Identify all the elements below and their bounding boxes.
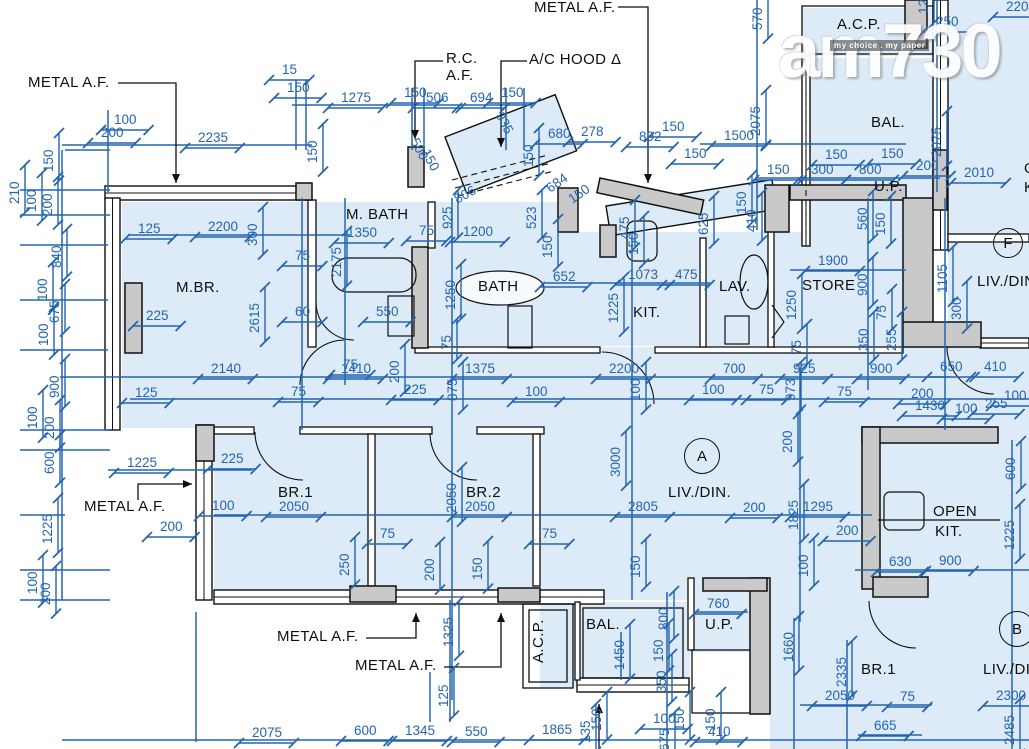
leader-arrowhead (183, 480, 192, 488)
structural-wall (408, 147, 424, 187)
am730-tagline: my choice . my paper (830, 40, 929, 51)
plan-drawing (0, 0, 1029, 749)
room-fill (770, 592, 1029, 749)
partition-wall (533, 434, 540, 586)
leader-line (118, 83, 176, 183)
partition-wall (308, 200, 316, 347)
leader-arrowhead (497, 613, 505, 622)
partition-wall (214, 427, 254, 434)
structural-wall (600, 225, 616, 257)
partition-wall (692, 650, 752, 713)
leader-arrowhead (644, 174, 652, 183)
structural-wall (350, 586, 396, 602)
leader-arrowhead (172, 174, 180, 183)
am730-logo: am730 (778, 14, 1000, 90)
fixture (456, 271, 544, 305)
structural-wall (765, 185, 789, 232)
floor-plan-page: 1515012751505066941501002002235150150570… (0, 0, 1029, 749)
structural-wall (703, 578, 767, 591)
structural-wall (862, 427, 998, 443)
partition-wall (768, 230, 774, 347)
structural-wall (903, 198, 933, 326)
leader-line (618, 7, 648, 183)
am730-watermark: am730 my choice . my paper (778, 14, 1000, 90)
structural-wall (862, 427, 880, 589)
structural-wall (125, 283, 142, 353)
structural-wall (296, 183, 312, 200)
partition-wall (948, 234, 1029, 242)
leader-line (366, 613, 416, 638)
partition-wall (368, 434, 375, 586)
partition-wall (655, 347, 903, 353)
room-fill (312, 202, 428, 348)
leader-line (415, 61, 443, 139)
structural-wall (498, 588, 540, 602)
partition-wall (300, 427, 432, 434)
structural-wall (196, 425, 214, 461)
structural-wall (750, 578, 770, 714)
room-fill (214, 347, 1029, 600)
leader-arrowhead (412, 613, 420, 622)
partition-wall (700, 238, 706, 347)
partition-wall (575, 602, 580, 680)
structural-wall (873, 577, 928, 597)
structural-wall (558, 188, 578, 232)
partition-wall (477, 427, 544, 434)
